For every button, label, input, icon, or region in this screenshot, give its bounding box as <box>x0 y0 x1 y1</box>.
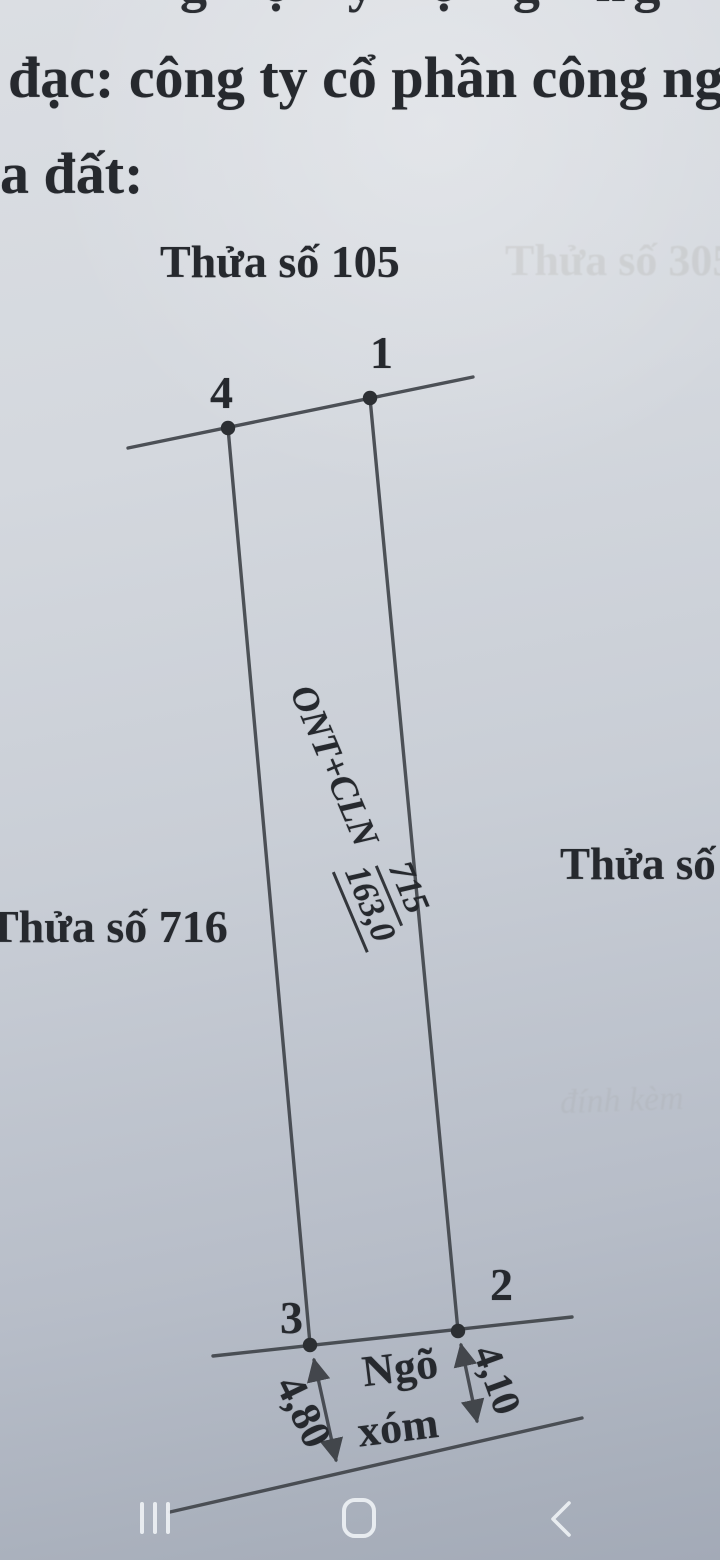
ghost-bleedthrough-parcel: Thửa số 305 <box>505 235 720 286</box>
back-icon[interactable] <box>548 1500 574 1538</box>
boundary-top-line <box>128 377 473 448</box>
parcel-label-right: Thửa số 3 <box>560 840 720 890</box>
road-name-line1: Ngõ <box>359 1339 440 1396</box>
parcel-center-label: ONT+CLN 715 163,0 <box>261 671 443 952</box>
back-chevron <box>548 1500 574 1538</box>
dimension-value-right: 4,10 <box>464 1340 529 1421</box>
dimension-value-left: 4,80 <box>266 1369 340 1455</box>
clipped-text: g ợ y ọ g ng <box>180 0 720 13</box>
home-icon[interactable] <box>342 1498 376 1538</box>
phone-screen: g ợ y ọ g ng đạc: công ty cổ phần công n… <box>0 0 720 1560</box>
road-name-line2: xóm <box>355 1399 441 1457</box>
corner-dot-3 <box>303 1338 317 1352</box>
parcel-area-fraction: 715 163,0 <box>332 840 443 953</box>
corner-label-4: 4 <box>210 368 233 419</box>
corner-dot-2 <box>451 1324 465 1338</box>
recents-icon[interactable] <box>140 1502 170 1534</box>
document-header-line2: a đất: <box>0 142 143 206</box>
android-navbar <box>0 1490 720 1550</box>
land-use-code: ONT+CLN <box>281 680 385 853</box>
document-header-line1: đạc: công ty cổ phần công ng <box>8 46 720 110</box>
ghost-bleedthrough-note: đính kèm <box>559 1080 684 1122</box>
boundary-left-line <box>228 428 310 1344</box>
corner-label-2: 2 <box>490 1260 513 1311</box>
parcel-label-105: Thửa số 105 <box>160 237 400 288</box>
corner-label-1: 1 <box>370 328 393 379</box>
corner-dot-4 <box>221 421 235 435</box>
corner-dot-1 <box>363 391 377 405</box>
clipped-text-strip: g ợ y ọ g ng <box>0 0 720 18</box>
corner-label-3: 3 <box>280 1293 303 1344</box>
parcel-label-716: Thửa số 716 <box>0 902 228 953</box>
